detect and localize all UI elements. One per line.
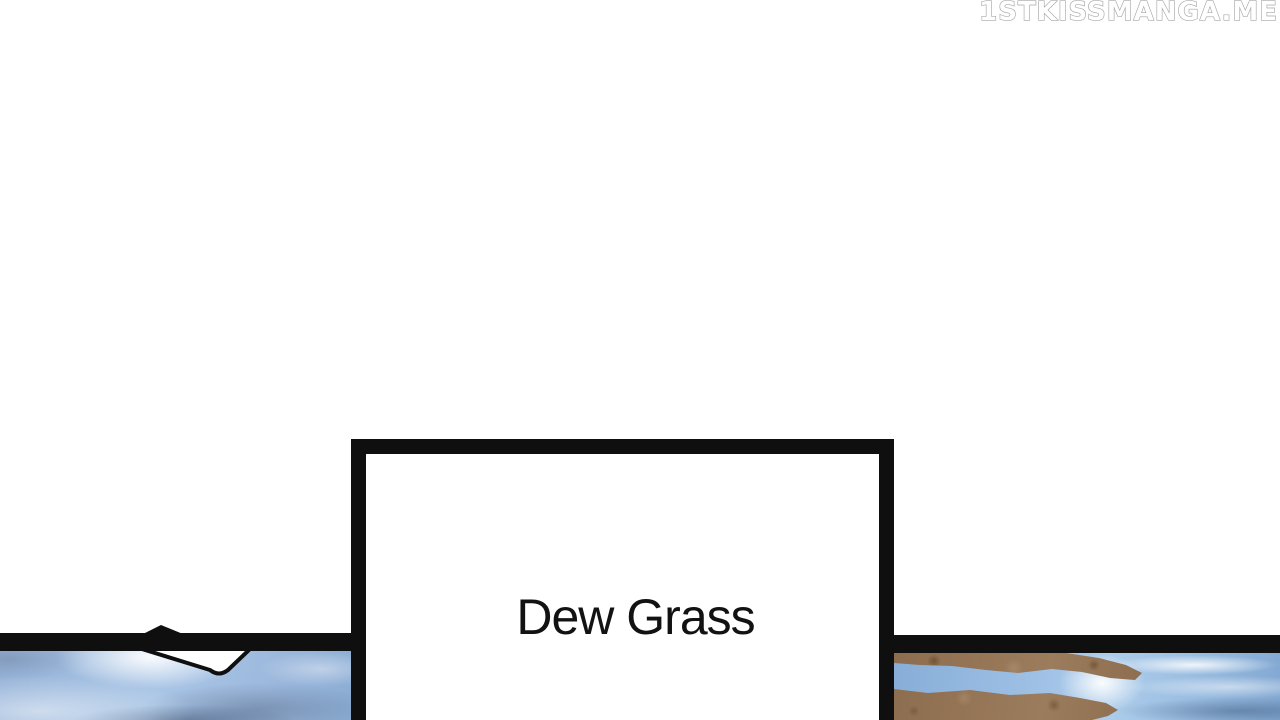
manga-page: 1STKISSMANGA.ME Dew Grass [0, 0, 1280, 720]
stream-artwork [894, 653, 1280, 720]
fin-shape [138, 651, 258, 680]
water-artwork [0, 651, 351, 720]
water-panel [0, 633, 351, 720]
caption-box: Dew Grass [351, 439, 894, 720]
caption-text: Dew Grass [379, 594, 892, 640]
site-watermark: 1STKISSMANGA.ME [979, 0, 1278, 27]
fin-tip [143, 625, 183, 634]
rock-stream-panel [894, 635, 1280, 720]
panel-border-top [0, 633, 351, 651]
panel-border-top [894, 635, 1280, 653]
